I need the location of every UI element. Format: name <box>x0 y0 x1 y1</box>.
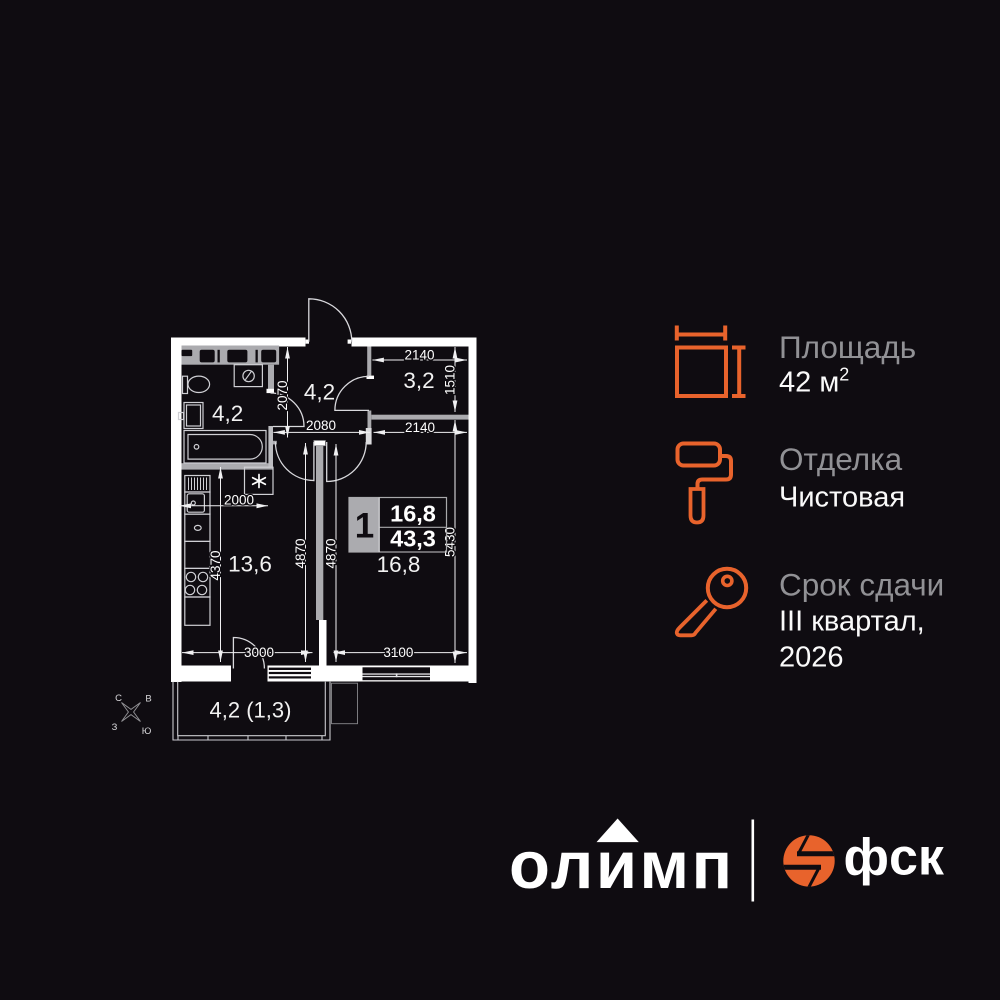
svg-text:Площадь: Площадь <box>779 329 916 365</box>
svg-text:4870: 4870 <box>324 538 339 568</box>
svg-text:2000: 2000 <box>224 492 254 507</box>
svg-text:олимп: олимп <box>509 828 735 903</box>
svg-text:3100: 3100 <box>383 645 413 660</box>
svg-text:2140: 2140 <box>404 348 434 363</box>
svg-text:Отделка: Отделка <box>779 441 903 477</box>
svg-text:4,2: 4,2 <box>304 380 335 405</box>
svg-text:2026: 2026 <box>779 642 844 674</box>
svg-text:4,2 (1,3): 4,2 (1,3) <box>210 698 292 723</box>
svg-text:2080: 2080 <box>306 418 336 433</box>
svg-text:III квартал,: III квартал, <box>779 606 925 638</box>
svg-text:фск: фск <box>844 829 945 887</box>
svg-text:13,6: 13,6 <box>228 552 272 577</box>
svg-text:2140: 2140 <box>405 420 435 435</box>
svg-text:С: С <box>115 693 122 704</box>
svg-text:4370: 4370 <box>208 550 223 580</box>
svg-text:16,8: 16,8 <box>390 501 436 527</box>
svg-text:4,2: 4,2 <box>212 401 243 426</box>
svg-text:43,3: 43,3 <box>390 526 436 552</box>
svg-text:Срок сдачи: Срок сдачи <box>779 567 944 603</box>
svg-text:З: З <box>112 722 118 733</box>
svg-text:В: В <box>145 694 151 705</box>
svg-text:3,2: 3,2 <box>403 368 434 393</box>
svg-text:Чистовая: Чистовая <box>779 482 905 514</box>
svg-text:Ю: Ю <box>142 726 152 737</box>
svg-text:42 м2: 42 м2 <box>779 365 849 399</box>
svg-text:2070: 2070 <box>275 380 290 410</box>
svg-text:16,8: 16,8 <box>377 552 421 577</box>
svg-text:1: 1 <box>355 507 374 546</box>
svg-text:1510: 1510 <box>443 365 458 395</box>
svg-text:4870: 4870 <box>293 538 308 568</box>
svg-text:3000: 3000 <box>244 645 274 660</box>
